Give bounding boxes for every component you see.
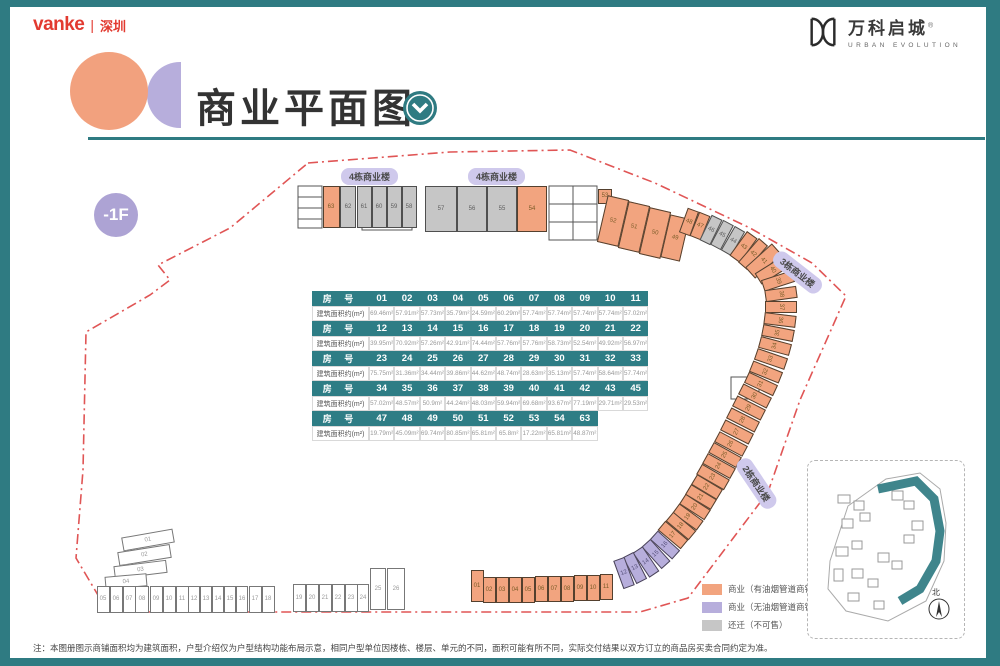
plan-unit-61: 61 (357, 186, 372, 228)
plan-unit-06: 06 (110, 586, 123, 613)
room-number-cell: 12 (369, 321, 394, 336)
table-area-row: 建筑面积约(m²)69.46m²57.91m²57.73m²35.79m²24.… (312, 306, 648, 321)
room-number-cell: 04 (445, 291, 470, 306)
legend: 商业（有油烟管道商铺）商业（无油烟管道商铺）还迁（不可售） (702, 583, 822, 637)
room-number-cell: 03 (420, 291, 445, 306)
legend-item: 商业（有油烟管道商铺） (702, 583, 822, 595)
room-number-cell: 13 (394, 321, 419, 336)
plan-unit-62: 62 (340, 186, 356, 228)
room-number-cell: 43 (598, 381, 623, 396)
building-label-4b: 4栋商业楼 (468, 168, 525, 185)
plan-unit-15: 15 (224, 586, 236, 613)
area-value-cell: 39.86m² (445, 366, 470, 381)
area-value-cell: 17.22m² (521, 426, 546, 441)
room-number-cell: 36 (420, 381, 445, 396)
disclaimer-note: 注：本图册图示商铺面积均为建筑面积，户型介绍仅为户型结构功能布局示意，相同户型单… (33, 642, 978, 654)
area-value-cell: 57.76m² (521, 336, 546, 351)
legend-swatch (702, 584, 722, 595)
area-value-cell: 49.92m² (598, 336, 623, 351)
area-value-cell: 74.44m² (471, 336, 496, 351)
brochure-page: vanke | 深圳 万科启城® URBAN EVOLUTION 商业平面图 -… (0, 0, 1000, 666)
area-value-cell: 57.74m² (521, 306, 546, 321)
area-value-cell: 45.09m² (394, 426, 419, 441)
area-value-cell: 65.8m² (496, 426, 521, 441)
area-value-cell: 39.95m² (369, 336, 394, 351)
area-value-cell: 57.91m² (394, 306, 419, 321)
room-number-cell: 45 (623, 381, 648, 396)
area-value-cell: 44.62m² (471, 366, 496, 381)
area-value-cell: 70.92m² (394, 336, 419, 351)
area-value-cell: 69.46m² (369, 306, 394, 321)
table-room-row: 房 号2324252627282930313233 (312, 351, 648, 366)
area-value-cell: 35.13m² (547, 366, 572, 381)
plan-unit-08: 08 (561, 576, 574, 602)
plan-unit-11: 11 (600, 574, 613, 600)
room-number-cell: 40 (521, 381, 546, 396)
area-value-cell: 75.75m² (369, 366, 394, 381)
area-value-cell: 58.73m² (547, 336, 572, 351)
area-value-cell: 50.9m² (420, 396, 445, 411)
plan-unit-02: 02 (483, 577, 496, 603)
site-minimap: 北 (807, 460, 965, 639)
room-number-cell: 26 (445, 351, 470, 366)
decor-orange-circle (70, 52, 148, 130)
plan-unit-16: 16 (236, 586, 248, 613)
room-number-cell: 24 (394, 351, 419, 366)
room-number-cell: 41 (547, 381, 572, 396)
plan-unit-18: 18 (262, 586, 275, 613)
room-number-cell: 31 (572, 351, 597, 366)
area-value-cell: 24.59m² (471, 306, 496, 321)
room-number-cell: 42 (572, 381, 597, 396)
area-value-cell: 48.87m² (572, 426, 597, 441)
room-number-cell: 19 (547, 321, 572, 336)
area-value-cell: 77.19m² (572, 396, 597, 411)
area-value-cell: 28.63m² (521, 366, 546, 381)
room-number-cell: 10 (598, 291, 623, 306)
area-value-cell: 29.53m² (623, 396, 648, 411)
room-header-cell: 房 号 (312, 321, 369, 336)
plan-unit-57: 57 (425, 186, 457, 232)
unit-area-table: 房 号0102030405060708091011建筑面积约(m²)69.46m… (312, 291, 648, 441)
area-value-cell: 69.74m² (420, 426, 445, 441)
room-number-cell: 35 (394, 381, 419, 396)
plan-unit-23: 23 (345, 584, 358, 612)
room-number-cell: 47 (369, 411, 394, 426)
plan-unit-60: 60 (372, 186, 387, 228)
table-area-row: 建筑面积约(m²)75.75m²31.36m²34.44m²39.86m²44.… (312, 366, 648, 381)
plan-unit-10: 10 (587, 575, 600, 601)
table-room-row: 房 号1213141516171819202122 (312, 321, 648, 336)
room-header-cell: 房 号 (312, 381, 369, 396)
area-value-cell: 93.67m² (547, 396, 572, 411)
area-value-cell: 57.02m² (623, 306, 648, 321)
room-header-cell: 房 号 (312, 291, 369, 306)
plan-unit-55: 55 (487, 186, 517, 232)
room-number-cell: 52 (496, 411, 521, 426)
room-number-cell: 49 (420, 411, 445, 426)
plan-unit-01: 01 (471, 570, 484, 602)
plan-unit-03: 03 (496, 577, 509, 603)
area-header-cell: 建筑面积约(m²) (312, 396, 369, 411)
area-value-cell: 52.54m² (572, 336, 597, 351)
minimap-graphic (808, 461, 964, 638)
plan-unit-26: 26 (387, 568, 405, 610)
area-header-cell: 建筑面积约(m²) (312, 306, 369, 321)
area-value-cell: 42.91m² (445, 336, 470, 351)
area-value-cell: 48.03m² (471, 396, 496, 411)
room-number-cell: 18 (521, 321, 546, 336)
table-area-row: 建筑面积约(m²)19.79m²45.09m²69.74m²80.85m²65.… (312, 426, 648, 441)
area-value-cell: 31.36m² (394, 366, 419, 381)
plan-unit-05: 05 (522, 577, 535, 603)
area-value-cell: 57.74m² (598, 306, 623, 321)
table-room-row: 房 号474849505152535463 (312, 411, 648, 426)
plan-unit-12: 12 (188, 586, 200, 613)
room-number-cell: 33 (623, 351, 648, 366)
room-number-cell: 07 (521, 291, 546, 306)
room-number-cell: 09 (572, 291, 597, 306)
area-header-cell: 建筑面积约(m²) (312, 426, 369, 441)
plan-unit-07: 07 (548, 576, 561, 602)
room-number-cell: 06 (496, 291, 521, 306)
area-value-cell: 59.94m² (496, 396, 521, 411)
room-number-cell: 25 (420, 351, 445, 366)
plan-unit-09: 09 (150, 586, 163, 613)
room-number-cell: 39 (496, 381, 521, 396)
plan-unit-07: 07 (123, 586, 136, 613)
room-number-cell: 30 (547, 351, 572, 366)
area-value-cell: 57.26m² (420, 336, 445, 351)
room-number-cell: 29 (521, 351, 546, 366)
room-number-cell: 32 (598, 351, 623, 366)
plan-unit-54: 54 (517, 186, 547, 232)
room-number-cell: 01 (369, 291, 394, 306)
area-value-cell: 57.74m² (572, 366, 597, 381)
area-value-cell: 65.81m² (471, 426, 496, 441)
area-header-cell: 建筑面积约(m²) (312, 336, 369, 351)
room-number-cell: 22 (623, 321, 648, 336)
room-number-cell: 34 (369, 381, 394, 396)
area-value-cell: 44.24m² (445, 396, 470, 411)
plan-unit-22: 22 (332, 584, 345, 612)
room-number-cell: 48 (394, 411, 419, 426)
plan-unit-37: 37 (765, 301, 797, 313)
room-number-cell: 15 (445, 321, 470, 336)
room-number-cell: 16 (471, 321, 496, 336)
plan-unit-06: 06 (535, 576, 548, 602)
building-label-4a: 4栋商业楼 (341, 168, 398, 185)
room-number-cell: 08 (547, 291, 572, 306)
room-number-cell: 27 (471, 351, 496, 366)
room-number-cell: 11 (623, 291, 648, 306)
plan-unit-08: 08 (135, 586, 149, 613)
room-number-cell: 23 (369, 351, 394, 366)
room-number-cell: 02 (394, 291, 419, 306)
room-number-cell: 05 (471, 291, 496, 306)
area-value-cell: 57.02m² (369, 396, 394, 411)
area-value-cell: 57.76m² (496, 336, 521, 351)
table-room-row: 房 号0102030405060708091011 (312, 291, 648, 306)
area-value-cell: 34.44m² (420, 366, 445, 381)
area-value-cell: 58.64m² (598, 366, 623, 381)
chevron-badge-icon (400, 88, 440, 133)
area-value-cell: 57.73m² (420, 306, 445, 321)
table-area-row: 建筑面积约(m²)57.02m²48.57m²50.9m²44.24m²48.0… (312, 396, 648, 411)
plan-unit-63: 63 (323, 186, 340, 228)
area-value-cell: 35.79m² (445, 306, 470, 321)
legend-swatch (702, 620, 722, 631)
area-value-cell: 48.74m² (496, 366, 521, 381)
plan-unit-14: 14 (212, 586, 224, 613)
room-number-cell: 54 (547, 411, 572, 426)
room-number-cell: 37 (445, 381, 470, 396)
legend-label: 还迁（不可售） (728, 619, 788, 631)
compass-north-label: 北 (932, 587, 940, 598)
room-number-cell: 50 (445, 411, 470, 426)
table-area-row: 建筑面积约(m²)39.95m²70.92m²57.26m²42.91m²74.… (312, 336, 648, 351)
area-value-cell: 19.79m² (369, 426, 394, 441)
legend-swatch (702, 602, 722, 613)
room-number-cell: 21 (598, 321, 623, 336)
area-value-cell: 69.68m² (521, 396, 546, 411)
page-title: 商业平面图 (196, 76, 416, 134)
table-room-row: 房 号3435363738394041424345 (312, 381, 648, 396)
legend-item: 商业（无油烟管道商铺） (702, 601, 822, 613)
room-number-cell: 28 (496, 351, 521, 366)
plan-unit-19: 19 (293, 584, 306, 612)
legend-item: 还迁（不可售） (702, 619, 822, 631)
area-value-cell: 29.71m² (598, 396, 623, 411)
room-number-cell: 20 (572, 321, 597, 336)
room-header-cell: 房 号 (312, 351, 369, 366)
room-number-cell: 17 (496, 321, 521, 336)
plan-unit-59: 59 (387, 186, 402, 228)
plan-unit-21: 21 (319, 584, 332, 612)
area-value-cell: 57.74m² (623, 366, 648, 381)
plan-unit-10: 10 (163, 586, 176, 613)
plan-unit-25: 25 (370, 568, 386, 610)
plan-unit-11: 11 (176, 586, 189, 613)
area-value-cell: 60.29m² (496, 306, 521, 321)
plan-unit-13: 13 (200, 586, 212, 613)
room-number-cell: 51 (471, 411, 496, 426)
plan-unit-58: 58 (402, 186, 417, 228)
room-number-cell: 63 (572, 411, 597, 426)
room-number-cell: 38 (471, 381, 496, 396)
plan-unit-04: 04 (509, 577, 522, 603)
room-number-cell: 53 (521, 411, 546, 426)
area-value-cell: 56.97m² (623, 336, 648, 351)
plan-unit-56: 56 (457, 186, 487, 232)
room-header-cell: 房 号 (312, 411, 369, 426)
plan-unit-24: 24 (357, 584, 369, 612)
area-value-cell: 57.74m² (547, 306, 572, 321)
area-value-cell: 80.85m² (445, 426, 470, 441)
area-value-cell: 57.74m² (572, 306, 597, 321)
room-number-cell: 14 (420, 321, 445, 336)
area-header-cell: 建筑面积约(m²) (312, 366, 369, 381)
plan-unit-17: 17 (249, 586, 262, 613)
plan-unit-20: 20 (306, 584, 319, 612)
area-value-cell: 48.57m² (394, 396, 419, 411)
plan-unit-05: 05 (97, 586, 110, 613)
area-value-cell: 65.81m² (547, 426, 572, 441)
plan-unit-09: 09 (574, 575, 587, 601)
